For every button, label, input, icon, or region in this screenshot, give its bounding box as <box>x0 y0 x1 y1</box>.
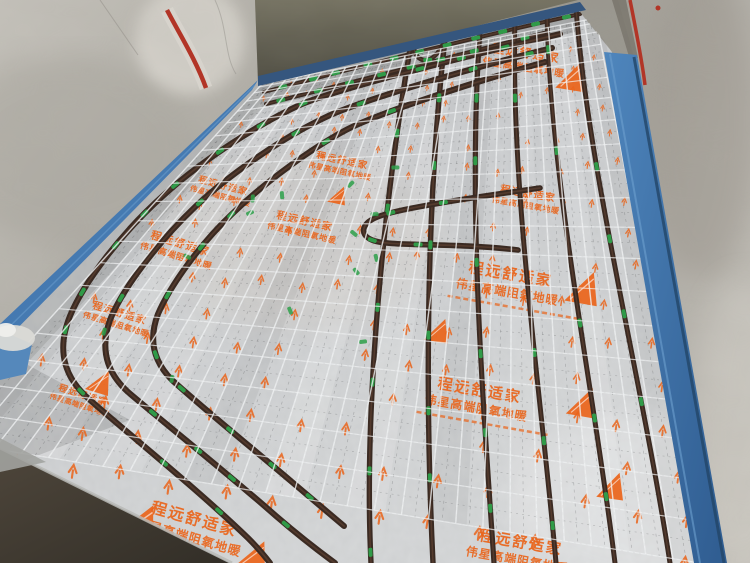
pipe-clip <box>475 258 479 267</box>
red-mark <box>656 6 661 11</box>
pipe-clip <box>488 504 493 513</box>
pipe-clip <box>426 406 430 415</box>
pipe-clip <box>250 194 255 202</box>
pipe-clip <box>428 240 432 249</box>
pipe-clip <box>414 242 423 246</box>
pipe-clip <box>375 303 380 312</box>
photo-stage: Construction photo: hydronic underfloor … <box>0 0 750 563</box>
pipe-clip <box>367 466 371 475</box>
pipe-clip <box>550 521 555 530</box>
pipe-clip <box>280 191 285 199</box>
pipe-clip <box>473 156 477 165</box>
pipe-clip <box>368 548 372 557</box>
room-photo: Construction photo: hydronic underfloor … <box>0 0 750 563</box>
pipe-clip <box>426 331 430 340</box>
pipe-clip <box>478 349 482 358</box>
pipe-clip <box>513 94 517 103</box>
pipe-clip <box>391 165 399 169</box>
pipe-clip <box>474 94 478 103</box>
